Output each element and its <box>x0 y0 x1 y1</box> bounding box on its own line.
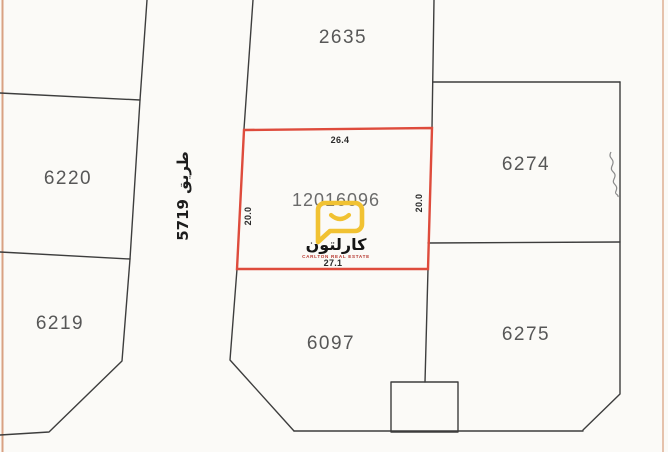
smile-icon <box>331 215 349 219</box>
small-structure-box <box>391 382 458 432</box>
boundary-2635-left <box>244 0 253 129</box>
dimension-left: 20.0 <box>243 207 253 226</box>
dimension-right: 20.0 <box>414 194 424 213</box>
boundary-6220-6219 <box>0 252 130 259</box>
plot-label-6275: 6275 <box>502 324 550 345</box>
boundary-right-side <box>583 82 620 430</box>
boundary-6220-top <box>0 93 140 100</box>
boundary-6097-left <box>230 269 294 431</box>
highlighted-plot-number: 12016096 <box>292 190 380 210</box>
handwritten-mark <box>610 152 618 197</box>
plot-label-6274: 6274 <box>502 154 550 175</box>
plot-label-6219: 6219 <box>36 313 84 334</box>
plot-map: 2635 6220 6219 6274 6275 6097 12016096 2… <box>0 0 668 452</box>
page-edge-lines <box>3 0 664 452</box>
brand-name-arabic: كارلتون <box>306 235 367 254</box>
plot-label-6220: 6220 <box>44 168 92 189</box>
dimension-top: 26.4 <box>331 135 350 145</box>
dimension-bottom: 27.1 <box>324 258 343 268</box>
boundary-lines <box>0 0 620 435</box>
road-label: طريق 5719 <box>174 151 192 241</box>
plot-label-6097: 6097 <box>307 333 355 354</box>
boundary-6097-6275 <box>425 269 428 382</box>
carlton-logo: كارلتون CARLTON REAL ESTATE <box>302 203 370 259</box>
brand-name-english: CARLTON REAL ESTATE <box>302 254 370 259</box>
boundary-6274-6275 <box>428 242 620 243</box>
boundary-2635-right <box>432 0 434 128</box>
boundary-road-left <box>0 0 147 435</box>
cadastral-map-svg: 2635 6220 6219 6274 6275 6097 12016096 2… <box>0 0 668 452</box>
plot-label-2635: 2635 <box>319 27 367 48</box>
